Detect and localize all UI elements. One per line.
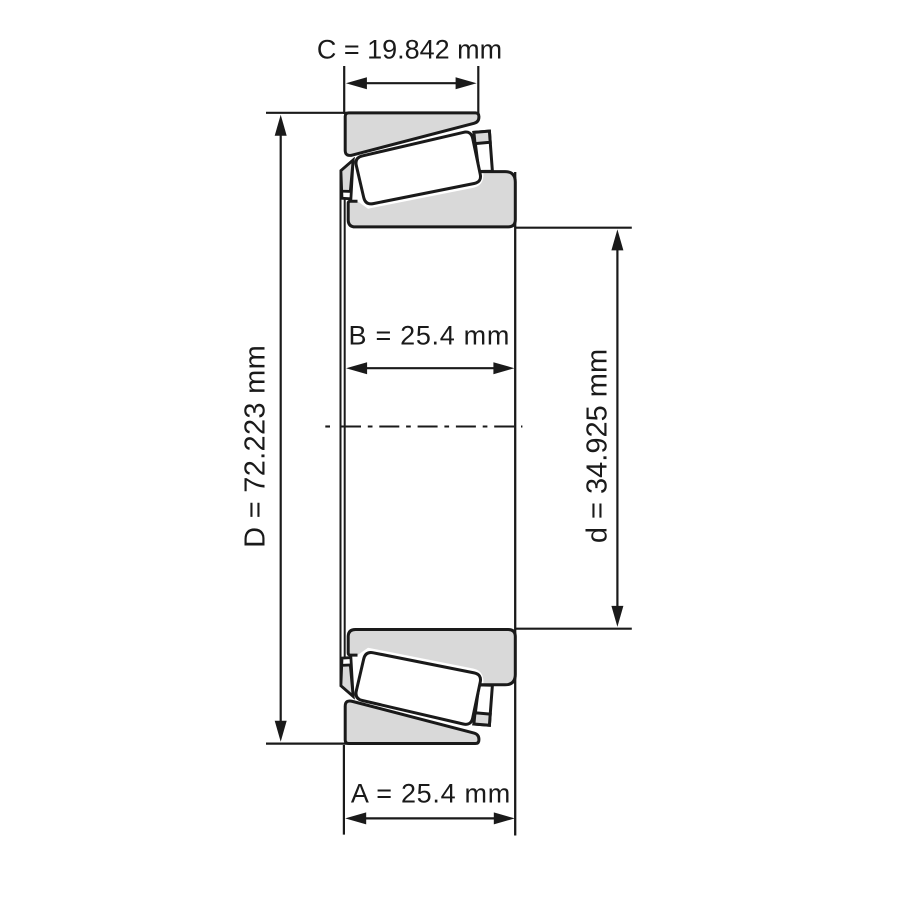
svg-text:D = 72.223 mm: D = 72.223 mm bbox=[239, 345, 271, 548]
svg-text:B = 25.4 mm: B = 25.4 mm bbox=[349, 321, 511, 351]
svg-text:A = 25.4 mm: A = 25.4 mm bbox=[351, 778, 511, 808]
svg-text:d = 34.925 mm: d = 34.925 mm bbox=[582, 349, 614, 543]
svg-text:C = 19.842 mm: C = 19.842 mm bbox=[317, 35, 502, 65]
